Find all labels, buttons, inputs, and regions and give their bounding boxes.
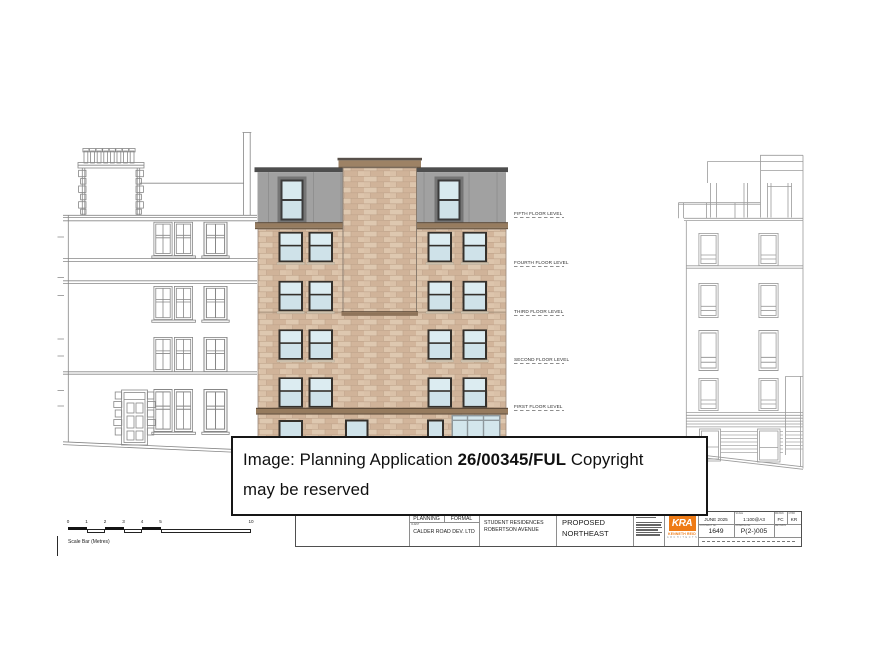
level-dashed-line — [514, 363, 564, 364]
date-value: JUNE 2025 — [698, 517, 734, 522]
client-label: CLIENT — [411, 524, 419, 526]
planning-drawing-page: FIFTH FLOOR LEVEL FOURTH FLOOR LEVEL THI… — [0, 0, 877, 652]
checked-value: KR — [787, 517, 801, 522]
application-reference: 26/00345/FUL — [458, 450, 566, 469]
scale-segment — [161, 529, 252, 533]
floor-level-label: FOURTH FLOOR LEVEL — [514, 260, 572, 267]
disclaimer-text — [702, 541, 797, 542]
floor-level-label: FIFTH FLOOR LEVEL — [514, 211, 572, 218]
level-dashed-line — [514, 410, 564, 411]
overlay-text: may be reserved — [243, 480, 369, 499]
drawing-title-line2: NORTHEAST — [562, 529, 609, 538]
firm-logo: KRA KENNETH REID ARCHITECTS — [667, 515, 697, 539]
drawn-value: FC — [774, 517, 787, 522]
stair-tower — [338, 158, 423, 316]
kra-logo-icon: KRA — [669, 515, 696, 531]
client-value: CALDER ROAD DEV. LTD — [409, 529, 479, 535]
scale-tick: 3 — [122, 519, 125, 524]
copyright-overlay: Image: Planning Application 26/00345/FUL… — [231, 436, 708, 516]
checked-label: CHKD — [789, 513, 796, 515]
drawn-label: DRAWN — [775, 513, 784, 515]
scale-segment — [124, 529, 143, 533]
floor-level-label: THIRD FLOOR LEVEL — [514, 309, 572, 316]
level-dashed-line — [514, 266, 564, 267]
drawing-title-line1: PROPOSED — [562, 518, 605, 527]
scale-tick: 5 — [159, 519, 162, 524]
scale-tick: 1 — [85, 519, 88, 524]
proposed-building-elevation — [255, 158, 509, 437]
scale-segment — [87, 529, 106, 533]
status-value: FORMAL — [444, 516, 479, 522]
scale-bar: 0 1 2 3 4 5 10 Scale Bar (Metres) — [68, 519, 263, 551]
floor-level-label: SECOND FLOOR LEVEL — [514, 357, 572, 364]
drawing-no-value: P(2-)005 — [734, 528, 774, 535]
project-line1: STUDENT RESIDENCES — [484, 520, 544, 526]
chimney-pots — [83, 149, 135, 164]
scale-label: SCALE — [736, 513, 744, 515]
floor-level-label: FIRST FLOOR LEVEL — [514, 404, 572, 411]
scale-tick: 2 — [104, 519, 107, 524]
left-tenement-drawing — [58, 133, 258, 453]
scale-segment — [68, 527, 87, 531]
scale-bar-label: Scale Bar (Metres) — [68, 539, 110, 545]
stage-value: PLANNING — [409, 516, 444, 522]
margin-tick — [57, 536, 59, 556]
scale-tick: 0 — [67, 519, 70, 524]
project-line2: ROBERTSON AVENUE — [484, 527, 539, 533]
level-dashed-line — [514, 217, 564, 218]
elevation-drawing — [0, 0, 877, 652]
right-building-drawing — [678, 155, 803, 469]
scale-value: 1:100@A3 — [734, 517, 774, 522]
scale-segment — [142, 527, 161, 531]
overlay-text: Image: Planning Application — [243, 450, 458, 469]
tenement-door — [114, 390, 156, 445]
contract-value: 1649 — [698, 528, 734, 535]
scale-tick: 4 — [141, 519, 144, 524]
scale-tick: 10 — [248, 519, 253, 524]
scale-segment — [105, 527, 124, 531]
title-block: REV DESCRIPTION DATE DRAWN CHKD STAGE PL… — [295, 511, 802, 547]
firm-address-text — [636, 515, 662, 537]
overlay-text: Copyright — [566, 450, 643, 469]
revision-label: REVISION — [775, 525, 786, 527]
firm-subtitle: ARCHITECTS — [667, 536, 697, 539]
level-dashed-line — [514, 315, 564, 316]
